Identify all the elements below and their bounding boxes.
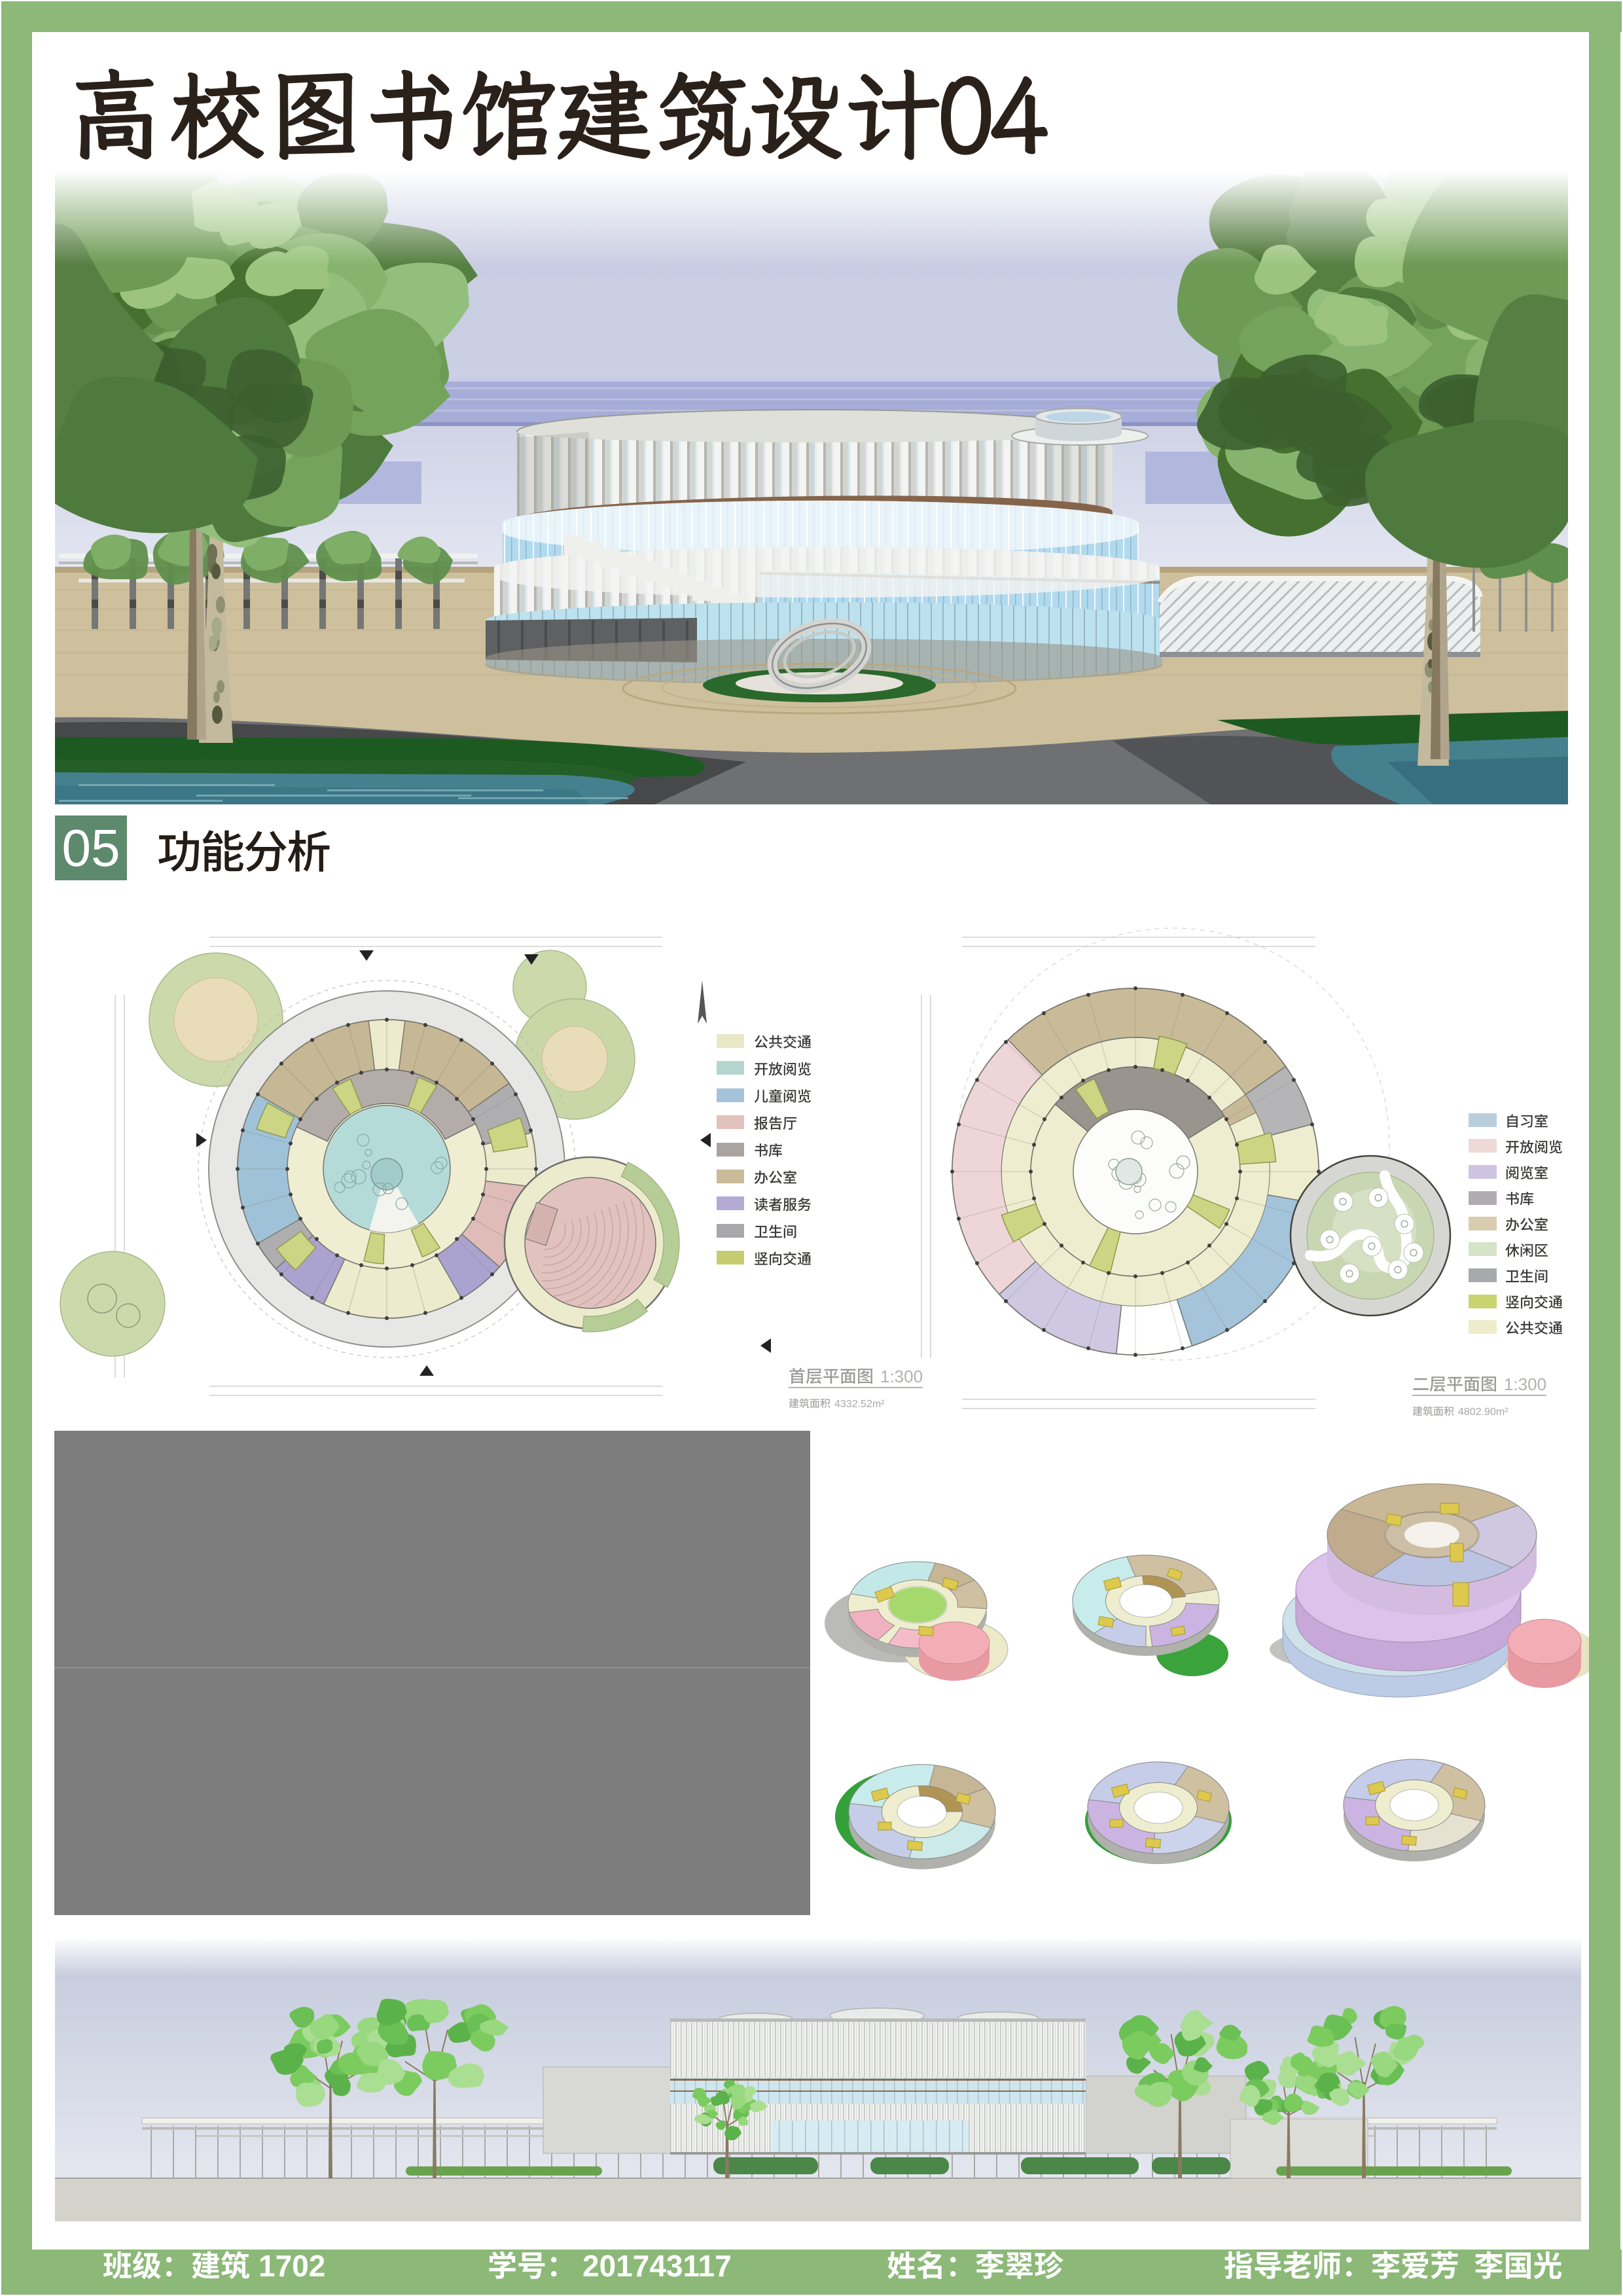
svg-text:1:300: 1:300: [1504, 1374, 1546, 1394]
svg-text:201743117: 201743117: [582, 2249, 732, 2283]
svg-text:4332.52m²: 4332.52m²: [834, 1399, 885, 1410]
svg-text:4802.90m²: 4802.90m²: [1458, 1407, 1508, 1418]
svg-text:1702: 1702: [259, 2249, 325, 2283]
svg-text:05: 05: [62, 819, 120, 877]
svg-text:1:300: 1:300: [880, 1367, 923, 1386]
